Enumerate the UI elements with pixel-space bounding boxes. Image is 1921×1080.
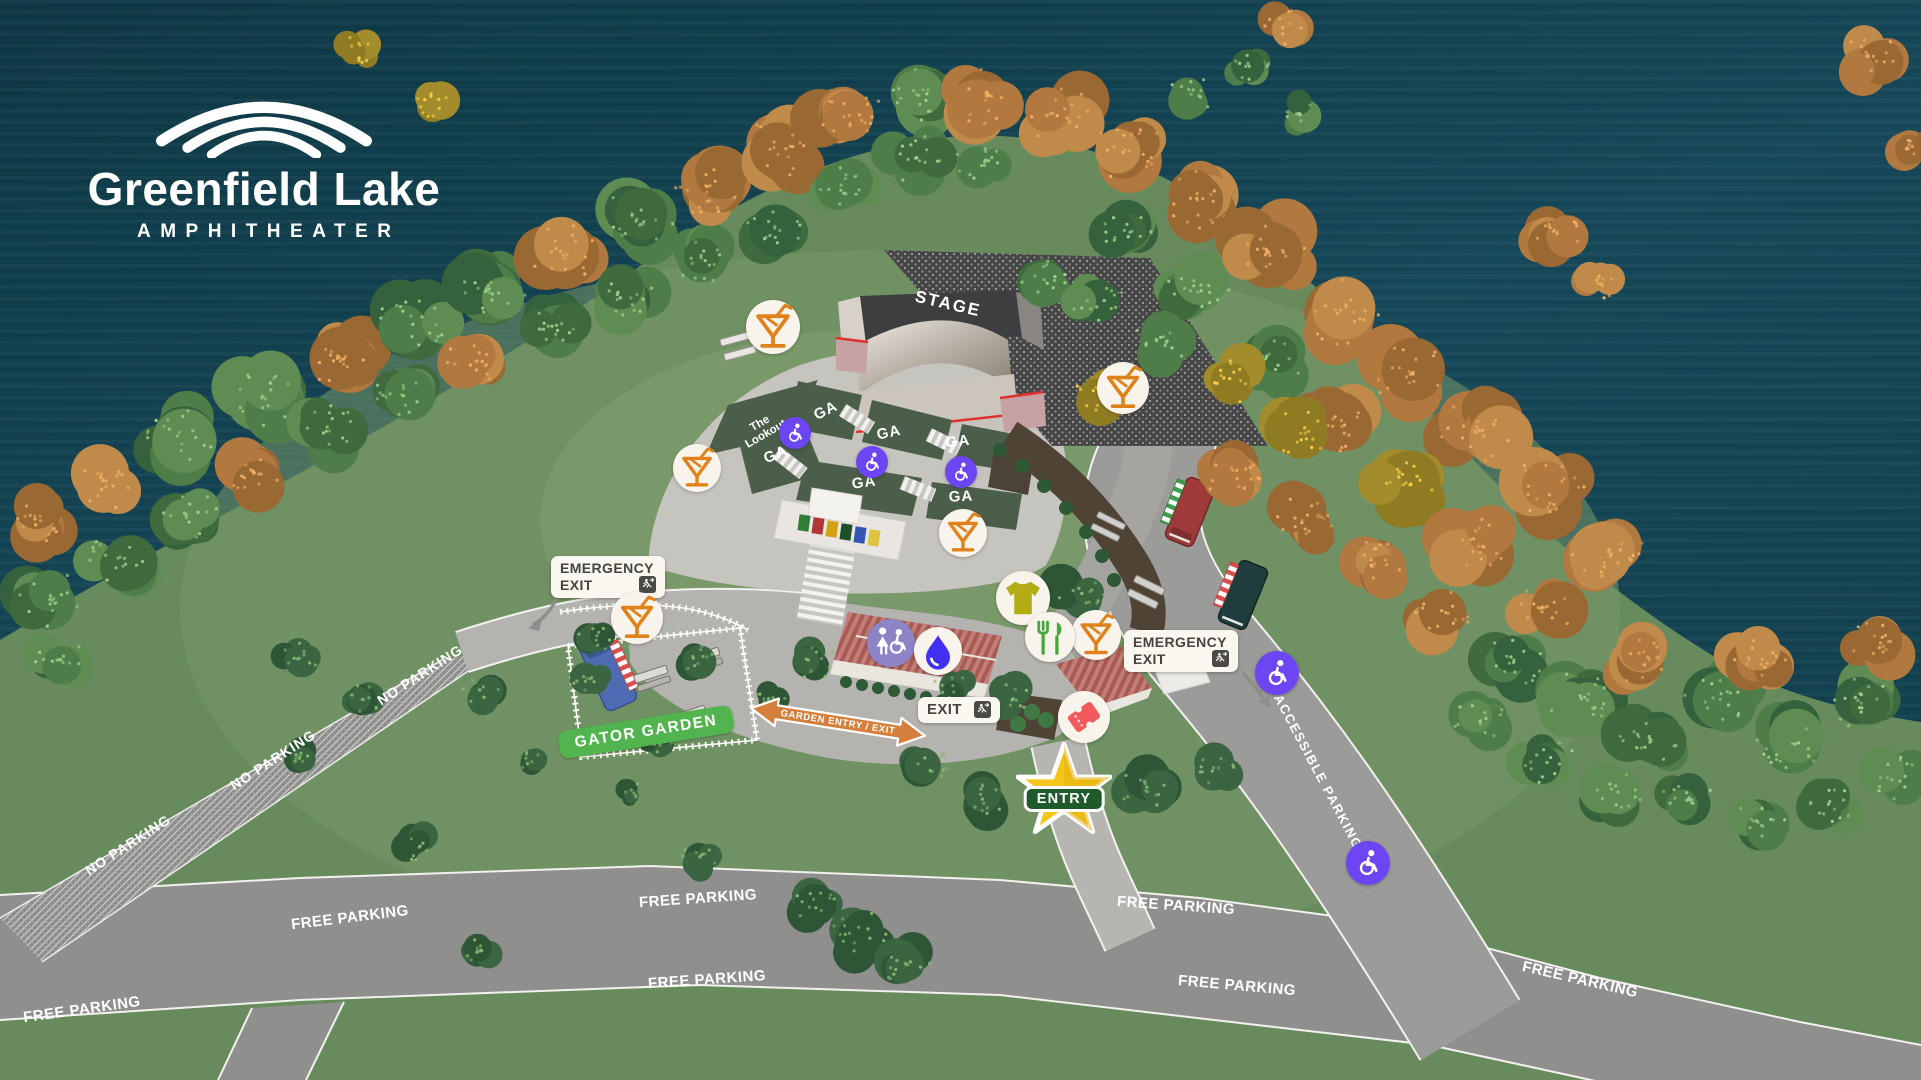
wheelchair-icon: [1255, 651, 1299, 695]
cocktail-icon: [673, 444, 721, 492]
logo-title: Greenfield Lake: [48, 162, 480, 216]
wheelchair-icon: [779, 417, 811, 449]
ticket-icon: [1058, 691, 1110, 743]
box-office-marker: [1058, 691, 1110, 743]
exit-run-icon: [639, 576, 656, 593]
cocktail-marker: [1097, 362, 1149, 414]
logo-subtitle: AMPHITHEATER: [48, 221, 480, 243]
emergency-exit-sign-right: EMERGENCY EXIT: [1124, 630, 1238, 672]
accessible-seating-marker: [856, 446, 888, 478]
sign-text-line1: EMERGENCY: [560, 560, 656, 576]
accessible-seating-marker: [945, 456, 977, 488]
cocktail-marker: [746, 300, 800, 354]
wheelchair-icon: [945, 456, 977, 488]
restroom-marker: [867, 619, 915, 667]
sign-text-line2: EXIT: [560, 577, 593, 593]
accessible-parking-marker: [1255, 651, 1299, 695]
wheelchair-icon: [1346, 841, 1390, 885]
water-drop-icon: [914, 627, 962, 675]
entry-marker: ENTRY: [1016, 742, 1112, 842]
sign-text-line1: EMERGENCY: [1133, 634, 1229, 650]
amphitheater-arcs-icon: [136, 72, 392, 158]
cocktail-icon: [1071, 610, 1121, 660]
sign-text: EXIT: [927, 701, 962, 718]
exit-run-icon: [1212, 650, 1229, 667]
cocktail-icon: [746, 300, 800, 354]
venue-logo: Greenfield Lake AMPHITHEATER: [48, 72, 480, 243]
section-label-ga: GA: [945, 433, 971, 451]
cocktail-marker: [1071, 610, 1121, 660]
venue-map: Greenfield Lake AMPHITHEATER STAGE The L…: [0, 0, 1921, 1080]
cocktail-marker: [611, 592, 663, 644]
water-refill-marker: [914, 627, 962, 675]
wheelchair-icon: [856, 446, 888, 478]
accessible-seating-marker: [779, 417, 811, 449]
fork-knife-icon: [1025, 612, 1075, 662]
cocktail-marker: [939, 509, 987, 557]
cocktail-icon: [1097, 362, 1149, 414]
cocktail-icon: [939, 509, 987, 557]
exit-run-icon: [974, 701, 991, 718]
cocktail-marker: [673, 444, 721, 492]
section-label-ga: GA: [948, 488, 973, 505]
sign-text-line2: EXIT: [1133, 651, 1166, 667]
entry-banner: ENTRY: [1024, 786, 1105, 812]
restroom-icon: [867, 619, 915, 667]
accessible-parking-marker: [1346, 841, 1390, 885]
cocktail-icon: [611, 592, 663, 644]
food-marker: [1025, 612, 1075, 662]
